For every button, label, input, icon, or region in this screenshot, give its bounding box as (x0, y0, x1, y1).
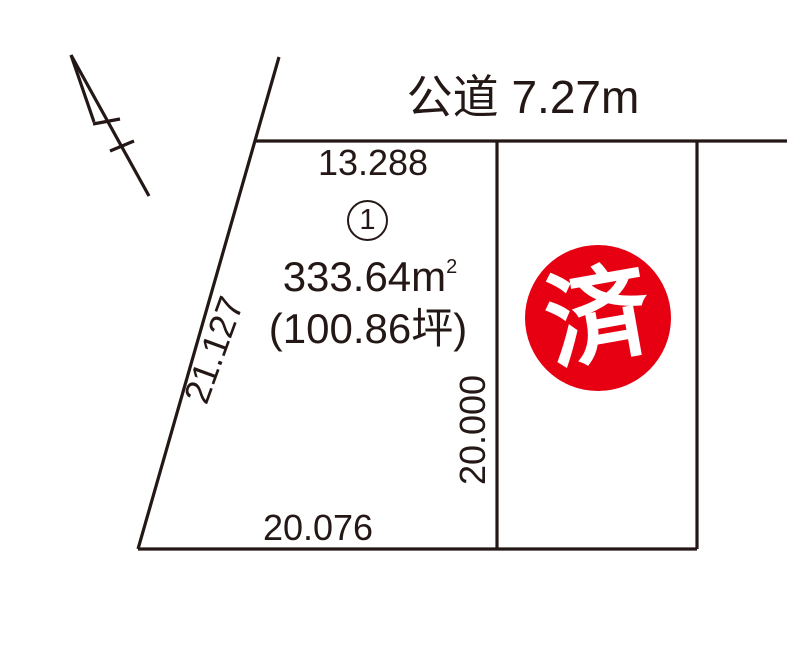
area-unit: m (411, 253, 446, 300)
lot-number-text: 1 (359, 206, 375, 235)
sold-stamp-text: 済 (538, 258, 658, 378)
road-label: 公道 7.27m (407, 74, 640, 120)
lot-number-badge: 1 (347, 200, 388, 241)
dimension-bottom: 20.076 (263, 510, 373, 546)
dimension-right: 20.000 (455, 375, 491, 485)
area-value: 333.64 (283, 253, 411, 300)
lot-area-tsubo: (100.86坪) (269, 308, 467, 350)
sold-badge: 済 (525, 245, 671, 391)
lot-area-sqm: 333.64m2 (283, 256, 458, 298)
dimension-top: 13.288 (318, 145, 428, 181)
area-exponent: 2 (446, 257, 457, 277)
north-arrow-icon (71, 55, 149, 196)
plot-diagram: 公道 7.27m 13.288 1 333.64m2 (100.86坪) 21.… (0, 0, 800, 650)
